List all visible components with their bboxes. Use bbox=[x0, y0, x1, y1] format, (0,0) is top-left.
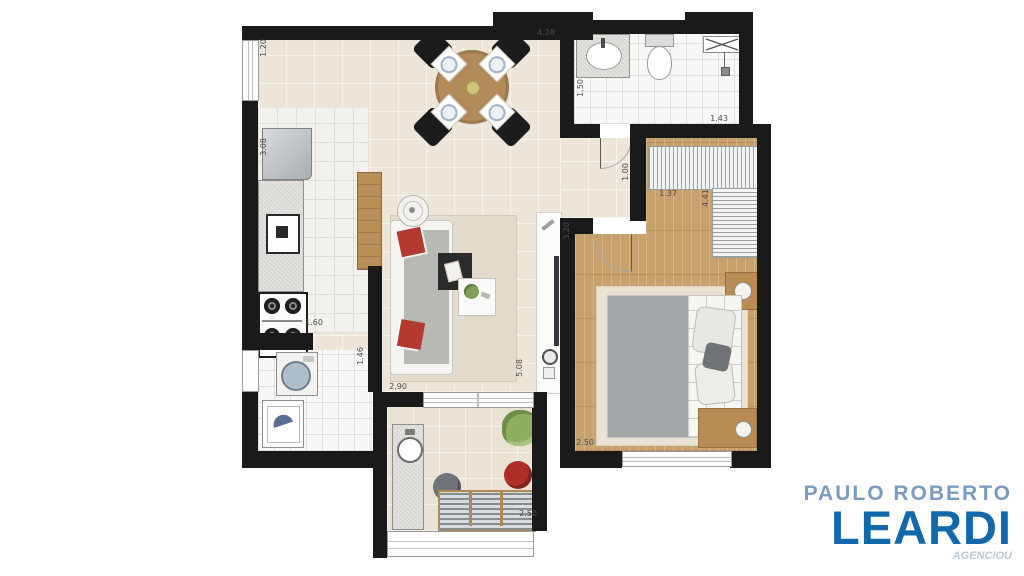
window bbox=[242, 350, 259, 392]
dim-hall-width: 1.00 bbox=[622, 163, 630, 181]
balcony-sink bbox=[397, 437, 423, 463]
sofa-cushion-red bbox=[397, 227, 426, 257]
wall bbox=[242, 99, 258, 350]
dim-bath-depth: 1.50 bbox=[577, 79, 585, 97]
dim-left-window: 1.20 bbox=[260, 39, 268, 57]
duvet bbox=[608, 296, 688, 437]
wall bbox=[560, 218, 575, 458]
dim-wardrobe-wall: 4.41 bbox=[702, 189, 710, 207]
wall bbox=[242, 26, 493, 40]
wall bbox=[560, 26, 574, 124]
laundry-sink bbox=[262, 400, 304, 448]
dim-bedroom-width: 2.50 bbox=[576, 439, 594, 447]
brand-logo: PAULO ROBERTO LEARDI AGENCIOU bbox=[804, 482, 1012, 562]
tv bbox=[554, 256, 559, 346]
dim-stove-width: 1.60 bbox=[305, 319, 323, 327]
dim-living-width: 2.90 bbox=[389, 383, 407, 391]
tv-console bbox=[536, 212, 562, 394]
wall bbox=[630, 138, 646, 221]
pouf-red bbox=[504, 461, 532, 489]
wall bbox=[560, 451, 622, 468]
faucet bbox=[601, 38, 605, 48]
plate bbox=[485, 100, 509, 124]
pillow-dark bbox=[702, 342, 733, 373]
wall bbox=[382, 392, 423, 407]
plate bbox=[437, 52, 461, 76]
dim-bedroom-length: 3.20 bbox=[563, 222, 571, 240]
plate bbox=[485, 52, 509, 76]
bathroom-sink-counter bbox=[576, 34, 630, 78]
wall bbox=[757, 124, 771, 458]
sofa-cushion-red bbox=[397, 319, 425, 350]
wall bbox=[630, 124, 771, 138]
wall bbox=[560, 124, 600, 138]
shower-fixture bbox=[724, 52, 725, 68]
wall bbox=[593, 20, 685, 34]
shower-knob bbox=[721, 67, 730, 76]
sofa bbox=[390, 220, 453, 375]
dim-kitchen-pass: 1.46 bbox=[357, 347, 365, 365]
shower-box bbox=[703, 36, 741, 53]
wall bbox=[730, 451, 771, 468]
kitchen-sink bbox=[266, 214, 300, 254]
balcony-sliding-door bbox=[423, 392, 534, 408]
speaker bbox=[542, 349, 558, 365]
dim-bedroom-nook: 1.37 bbox=[659, 190, 677, 198]
washing-machine bbox=[276, 352, 318, 396]
wall bbox=[739, 12, 753, 138]
plant bbox=[464, 284, 479, 299]
bedroom-window bbox=[622, 451, 732, 467]
wall bbox=[242, 333, 313, 350]
dim-balcony-width: 2.50 bbox=[519, 510, 537, 518]
dim-bath-width: 1.43 bbox=[710, 115, 728, 123]
balcony-counter bbox=[392, 424, 424, 530]
wall bbox=[373, 392, 387, 558]
wood-cabinet bbox=[357, 172, 382, 270]
centerpiece bbox=[466, 81, 480, 95]
bedroom-bench bbox=[698, 408, 757, 448]
brand-line2: LEARDI bbox=[804, 506, 1012, 549]
toilet bbox=[644, 34, 674, 82]
round-side-table bbox=[397, 195, 429, 227]
wall bbox=[368, 266, 382, 392]
dim-kitchen-depth: 3.08 bbox=[260, 138, 268, 156]
dim-dining-width: 4.28 bbox=[537, 29, 555, 37]
balcony-railing bbox=[387, 531, 534, 557]
wall bbox=[242, 26, 258, 40]
dim-living-length: 5.08 bbox=[516, 359, 524, 377]
floorplan-image: 4.28 1.20 1.50 1.43 1.00 1.37 4.41 3.20 … bbox=[0, 0, 1024, 576]
wall bbox=[242, 451, 373, 468]
refrigerator bbox=[262, 128, 312, 180]
window bbox=[242, 40, 259, 101]
wardrobe bbox=[648, 146, 759, 190]
wardrobe bbox=[712, 188, 759, 258]
side-table bbox=[458, 278, 496, 316]
plate bbox=[437, 100, 461, 124]
